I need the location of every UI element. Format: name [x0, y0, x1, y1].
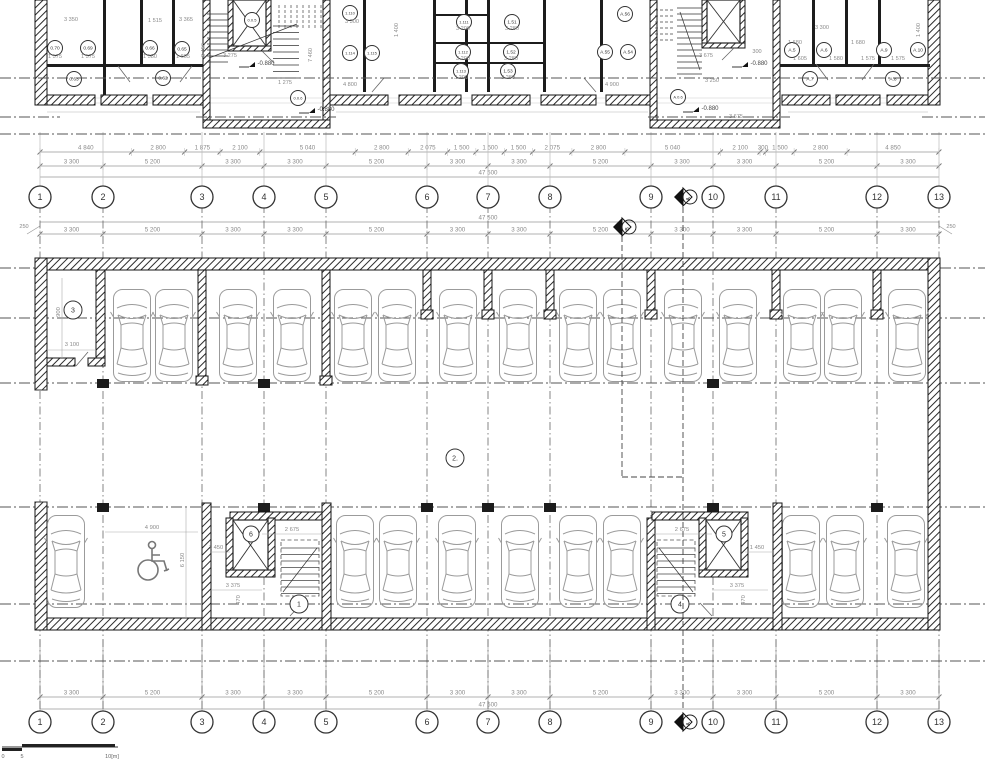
- car-mirror: [781, 312, 824, 317]
- dim-text: 1 875: [195, 145, 211, 152]
- car-trunk: [506, 599, 534, 602]
- car-rear-window: [503, 364, 533, 367]
- wall: [487, 62, 543, 64]
- dim-text: 3 300: [900, 690, 916, 697]
- wall: [484, 270, 492, 312]
- wall: [544, 310, 556, 319]
- car-mirror: [334, 538, 377, 543]
- wall: [845, 0, 848, 64]
- dim-text: 3 100: [65, 342, 80, 348]
- wall: [153, 95, 203, 105]
- wall: [871, 310, 883, 319]
- grid-bubble-label: 8: [547, 192, 552, 202]
- car-body: [502, 516, 539, 608]
- car-roof: [227, 323, 249, 350]
- circle: [138, 560, 158, 580]
- dim-text: 1 400: [394, 23, 400, 37]
- car-mirror: [557, 538, 600, 543]
- wall: [773, 503, 782, 630]
- section-marker-fill: [613, 218, 622, 236]
- wall: [423, 270, 431, 312]
- door-swing: [372, 78, 384, 92]
- parking-space-label-text: 1: [297, 602, 301, 609]
- dim-text: 2 800: [374, 145, 390, 152]
- car-rear-window: [787, 364, 817, 367]
- room-label-text: A.9: [880, 48, 888, 54]
- room-label-text: 0.0.5: [248, 17, 258, 22]
- wall: [35, 502, 47, 630]
- car-roof: [727, 323, 749, 350]
- upper-floor-plan: 0.700.690.660.650.630.620.0.50.0.61.1101…: [35, 0, 940, 128]
- floor-plan-svg: 0.700.690.660.650.630.620.0.50.0.61.1101…: [0, 0, 985, 762]
- wall: [836, 95, 880, 105]
- wall: [101, 95, 147, 105]
- car-roof: [790, 549, 812, 576]
- dim-text: 3 375: [226, 583, 241, 589]
- car-rear-window: [505, 590, 535, 593]
- wall: [47, 358, 75, 366]
- dim-text: 4 850: [885, 145, 901, 152]
- car-body: [888, 516, 925, 608]
- wall: [258, 503, 270, 512]
- dim-text: 1 575: [891, 56, 905, 62]
- path: [152, 549, 167, 571]
- car-hood: [383, 531, 413, 535]
- wall: [873, 270, 881, 312]
- car-rear-window: [892, 364, 922, 367]
- car: [557, 516, 600, 608]
- scale-bar-label: 5: [20, 754, 23, 760]
- dim-text: 4 800: [343, 82, 357, 88]
- level-mark-flag: [693, 107, 699, 112]
- dim-text: 3 675: [699, 53, 713, 59]
- car: [601, 516, 644, 608]
- wall: [702, 0, 707, 48]
- dim-text: 3 456: [201, 43, 207, 57]
- car-windshield: [608, 541, 636, 545]
- dim-text: 5 200: [369, 690, 385, 697]
- path: [164, 569, 169, 571]
- car-windshield: [384, 541, 412, 545]
- level-mark-text: -0.880: [701, 106, 719, 112]
- room-label-text: 1.52: [506, 50, 516, 56]
- car-roof: [896, 323, 918, 350]
- car-roof: [281, 323, 303, 350]
- scale-bar-segment: [22, 744, 115, 747]
- grid-bubble-label: 2: [100, 717, 105, 727]
- wall: [35, 0, 47, 105]
- dim-text: 3 300: [64, 159, 80, 166]
- dim-text: 5 200: [593, 159, 609, 166]
- wall: [887, 95, 928, 105]
- dim-text: 4 840: [78, 145, 94, 152]
- car-hood: [607, 305, 637, 309]
- car-body: [889, 290, 926, 382]
- dim-text: 1 500: [454, 145, 470, 152]
- car-mirror: [885, 538, 928, 543]
- room-label-text: A.6: [820, 48, 828, 54]
- car-rear-window: [563, 364, 593, 367]
- dim-text: 3 300: [225, 227, 241, 234]
- car-mirror: [780, 538, 823, 543]
- wall: [544, 503, 556, 512]
- wall: [268, 518, 275, 577]
- wall: [928, 0, 940, 105]
- wall: [543, 0, 546, 92]
- car-trunk: [224, 373, 252, 376]
- wall: [702, 43, 745, 48]
- car-rear-window: [277, 364, 307, 367]
- car-hood: [892, 305, 922, 309]
- car: [824, 516, 867, 608]
- car-rear-window: [563, 590, 593, 593]
- wall: [47, 64, 203, 67]
- room-label-text: 1.51: [507, 20, 517, 26]
- dim-text: 3 280: [504, 56, 518, 62]
- car-hood: [830, 531, 860, 535]
- dim-text: 1 450: [750, 545, 765, 551]
- dim-leader: [27, 226, 40, 234]
- car-trunk: [504, 373, 532, 376]
- wall: [35, 258, 47, 390]
- car-body: [500, 290, 537, 382]
- dim-text: 1 605: [793, 56, 807, 62]
- car: [822, 290, 865, 382]
- scale-bar-segment: [2, 748, 22, 751]
- car-rear-window: [891, 590, 921, 593]
- dim-text: 3 280: [505, 26, 519, 32]
- car-mirror: [886, 312, 929, 317]
- car-body: [379, 290, 416, 382]
- dim-text: 2 800: [591, 145, 607, 152]
- dim-text: 3 300: [737, 227, 753, 234]
- handicap-icon: [138, 542, 169, 581]
- dim-text: 3 300: [674, 690, 690, 697]
- room-label-text: 0.66: [145, 46, 155, 52]
- room-label-text: 0.69: [83, 46, 93, 52]
- markers-and-scale: ABA0510[m]: [1, 188, 697, 760]
- grid-bubble-label: 13: [934, 717, 944, 727]
- room-label-text: 1.53: [503, 69, 513, 75]
- wall: [482, 503, 494, 512]
- dim-text: 2 800: [813, 145, 829, 152]
- car-body: [156, 290, 193, 382]
- dim-text: 470: [741, 595, 747, 605]
- room-label-text: A.0.6: [673, 94, 683, 99]
- wall: [35, 258, 940, 270]
- car-rear-window: [159, 364, 189, 367]
- car-trunk: [339, 373, 367, 376]
- grid-bubble-label: 1: [37, 717, 42, 727]
- dim-text: 5 200: [145, 227, 161, 234]
- car-trunk: [892, 599, 920, 602]
- car-roof: [611, 549, 633, 576]
- grid-bubble-label: 12: [872, 717, 882, 727]
- car-hood: [277, 305, 307, 309]
- wall: [202, 503, 211, 630]
- wall: [699, 570, 748, 577]
- wall: [421, 503, 433, 512]
- door-swing: [76, 352, 88, 366]
- wall: [707, 503, 719, 512]
- wall: [741, 518, 748, 577]
- car-roof: [163, 323, 185, 350]
- car-roof: [507, 323, 529, 350]
- dim-text: 3 300: [64, 690, 80, 697]
- grid-bubble-label: 9: [648, 717, 653, 727]
- dim-text: 2 800: [150, 145, 166, 152]
- wall: [770, 310, 782, 319]
- car-mirror: [497, 312, 540, 317]
- car-body: [337, 516, 374, 608]
- wall: [928, 258, 940, 630]
- car-trunk: [443, 599, 471, 602]
- wall: [330, 95, 388, 105]
- car-trunk: [829, 373, 857, 376]
- dim-text: 3 300: [674, 159, 690, 166]
- dim-text: 1 500: [511, 145, 527, 152]
- car-hood: [505, 531, 535, 535]
- car: [377, 516, 420, 608]
- car-windshield: [52, 541, 80, 545]
- car-mirror: [436, 538, 479, 543]
- grid-bubble-label: 12: [872, 192, 882, 202]
- level-mark-flag: [309, 108, 315, 113]
- car-hood: [443, 305, 473, 309]
- room-label-text: 0.65: [177, 47, 187, 53]
- wall: [258, 379, 270, 388]
- car-trunk: [52, 599, 80, 602]
- wall: [196, 376, 208, 385]
- grid-bubble-label: 7: [485, 192, 490, 202]
- car-mirror: [111, 312, 154, 317]
- dim-text: 1 500: [482, 145, 498, 152]
- wall: [230, 512, 322, 520]
- car-trunk: [278, 373, 306, 376]
- car-trunk: [893, 373, 921, 376]
- wall: [226, 570, 275, 577]
- car-roof: [446, 549, 468, 576]
- dim-text: 1 400: [916, 23, 922, 37]
- grid-bubble-label: 2: [100, 192, 105, 202]
- scale-bar: 0510[m]: [1, 744, 119, 760]
- grid-bubble-label: 5: [323, 192, 328, 202]
- dim-text: 1 575: [81, 54, 95, 60]
- grid-bubble-label: 13: [934, 192, 944, 202]
- room-label-text: A.56: [620, 12, 630, 18]
- wall: [546, 270, 554, 312]
- level-mark-text: -0.880: [317, 107, 335, 113]
- car-body: [48, 516, 85, 608]
- dim-text: 1 575: [861, 56, 875, 62]
- wall: [226, 518, 233, 577]
- circle: [149, 542, 156, 549]
- car-windshield: [341, 541, 369, 545]
- dim-text: 5 200: [819, 690, 835, 697]
- wall: [645, 310, 657, 319]
- car-hood: [51, 531, 81, 535]
- dim-text: 3 300: [511, 227, 527, 234]
- wall: [35, 618, 940, 630]
- wall: [650, 0, 657, 128]
- car: [497, 290, 540, 382]
- car-hood: [117, 305, 147, 309]
- dim-text: 3 300: [225, 159, 241, 166]
- door-swing: [584, 78, 596, 92]
- dim-text: 3 300: [674, 227, 690, 234]
- car-mirror: [376, 312, 419, 317]
- dim-text: 1 580: [143, 54, 157, 60]
- car-hood: [723, 305, 753, 309]
- dim-text: 3 300: [511, 690, 527, 697]
- wall: [740, 0, 745, 48]
- car-roof: [342, 323, 364, 350]
- dim-text: 5 200: [145, 159, 161, 166]
- grid-bubble-label: 3: [199, 717, 204, 727]
- dim-text: 4 900: [145, 525, 160, 531]
- car-rear-window: [786, 590, 816, 593]
- car-roof: [895, 549, 917, 576]
- dim-text: 3 350: [64, 17, 78, 23]
- car: [45, 516, 88, 608]
- wall: [88, 358, 105, 366]
- grid-bubble-label: 9: [648, 192, 653, 202]
- dim-text: 3 300: [450, 159, 466, 166]
- wall: [320, 376, 332, 385]
- car-mirror: [217, 312, 260, 317]
- car-body: [827, 516, 864, 608]
- car-body: [784, 290, 821, 382]
- car-body: [560, 516, 597, 608]
- room-label-text: 0.62: [158, 76, 168, 82]
- door-swing: [118, 66, 130, 82]
- dim-text: 3 300: [450, 690, 466, 697]
- car-windshield: [831, 541, 859, 545]
- room-label-text: 0.0.6: [294, 95, 304, 100]
- car: [499, 516, 542, 608]
- car-mirror: [601, 538, 644, 543]
- car-windshield: [892, 541, 920, 545]
- car: [717, 290, 760, 382]
- dim-text: 3 300: [737, 159, 753, 166]
- scale-bar-label: 10[m]: [105, 754, 119, 760]
- car-body: [380, 516, 417, 608]
- car-hood: [787, 305, 817, 309]
- car-roof: [447, 323, 469, 350]
- wall: [96, 270, 105, 366]
- car-mirror: [153, 312, 196, 317]
- dim-text: 2 075: [420, 145, 436, 152]
- wall: [699, 518, 706, 577]
- car-trunk: [118, 373, 146, 376]
- car-hood: [891, 531, 921, 535]
- car-body: [720, 290, 757, 382]
- dim-text: 3 300: [287, 227, 303, 234]
- parking-plan: 32.61549003 1004 9006 1501 4502 6753 375…: [35, 258, 940, 630]
- car-mirror: [822, 312, 865, 317]
- dim-text: 1 515: [148, 18, 162, 24]
- car: [271, 290, 314, 382]
- door-swing: [700, 603, 712, 616]
- dim-text: 3 250: [705, 78, 719, 84]
- room-label-text: A.54: [623, 50, 633, 56]
- grid-bubble-label: 6: [424, 717, 429, 727]
- wall: [266, 0, 271, 50]
- car-rear-window: [51, 590, 81, 593]
- car-rear-window: [383, 590, 413, 593]
- car-mirror: [717, 312, 760, 317]
- car-hood: [563, 531, 593, 535]
- wall: [198, 270, 206, 378]
- section-marker-fill: [674, 713, 683, 731]
- wall: [399, 95, 461, 105]
- car-roof: [834, 549, 856, 576]
- car-mirror: [271, 312, 314, 317]
- car-body: [274, 290, 311, 382]
- wall: [871, 503, 883, 512]
- door-swing: [180, 66, 192, 82]
- dim-text: 3 300: [64, 227, 80, 234]
- car-rear-window: [442, 590, 472, 593]
- car: [111, 290, 154, 382]
- dim-text: 3 300: [287, 159, 303, 166]
- level-mark-text: -0.880: [257, 61, 275, 67]
- car-roof: [121, 323, 143, 350]
- dim-text: 1 500: [772, 145, 788, 152]
- dim-text: 1 680: [788, 40, 802, 46]
- car-trunk: [787, 599, 815, 602]
- dim-text: 3 300: [287, 690, 303, 697]
- wall: [228, 0, 233, 50]
- dim-text: 2 100: [232, 145, 248, 152]
- wall: [322, 270, 330, 378]
- dim-text: 5 040: [665, 145, 681, 152]
- wall: [782, 95, 830, 105]
- car-mirror: [557, 312, 600, 317]
- dim-text: 3 300: [450, 227, 466, 234]
- car-windshield: [443, 541, 471, 545]
- car-body: [220, 290, 257, 382]
- dim-text: 250: [946, 224, 955, 230]
- car: [437, 290, 480, 382]
- car-body: [825, 290, 862, 382]
- room-label-text: 1.115: [367, 50, 377, 55]
- wall: [203, 0, 210, 128]
- car-hood: [828, 305, 858, 309]
- grid-bubble-label: 11: [771, 717, 780, 727]
- car-roof: [567, 549, 589, 576]
- car-windshield: [506, 541, 534, 545]
- car-roof: [791, 323, 813, 350]
- car-mirror: [45, 538, 88, 543]
- car: [557, 290, 600, 382]
- car: [780, 516, 823, 608]
- dim-text: 5 200: [819, 227, 835, 234]
- car-roof: [55, 549, 77, 576]
- dim-text: 5 200: [593, 690, 609, 697]
- car: [334, 516, 377, 608]
- wall: [433, 42, 490, 44]
- grid-bubble-label: 8: [547, 717, 552, 727]
- car-body: [440, 290, 477, 382]
- wall: [472, 95, 530, 105]
- wall: [780, 64, 930, 67]
- room-label-text: 1.110: [345, 10, 355, 15]
- car-trunk: [564, 599, 592, 602]
- car-hood: [563, 305, 593, 309]
- dim-text: 3 200: [456, 26, 470, 32]
- car-trunk: [160, 373, 188, 376]
